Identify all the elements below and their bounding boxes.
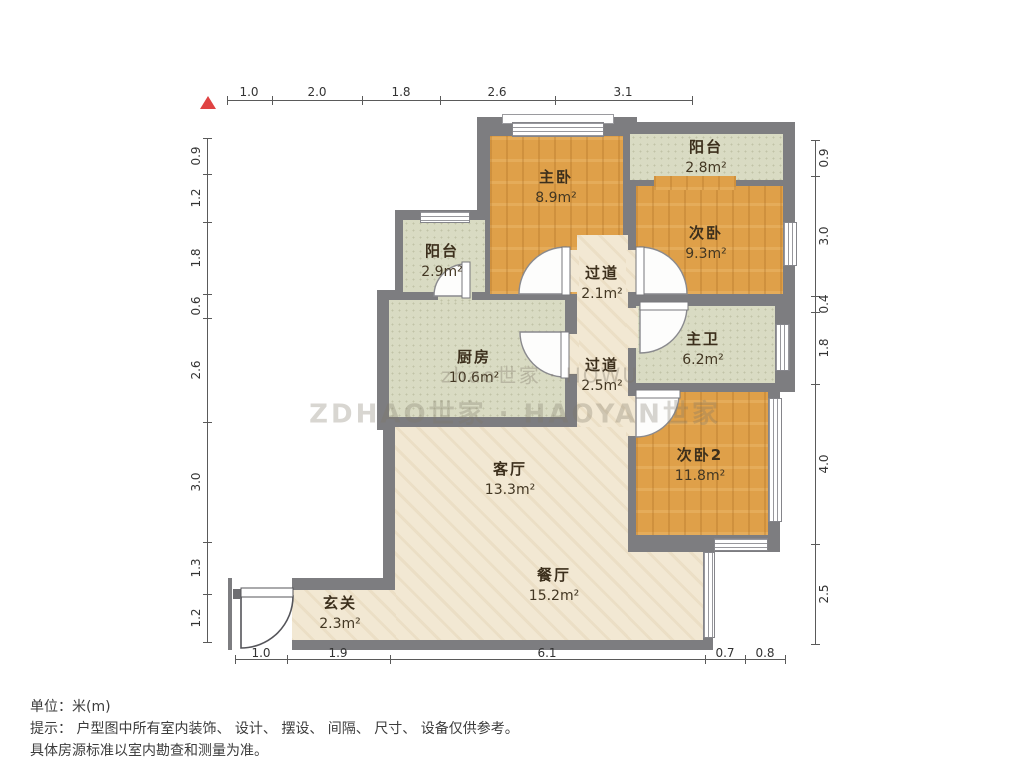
room-label-balcony-left: 阳台 2.9m² — [421, 244, 463, 279]
room-label-master-bath: 主卫 6.2m² — [682, 332, 724, 367]
room-area: 2.8m² — [685, 161, 727, 175]
tick — [745, 655, 746, 664]
room-name: 阳台 — [685, 140, 727, 155]
room-area: 13.3m² — [485, 483, 535, 497]
room-area: 10.6m² — [449, 371, 499, 385]
dim-label: 1.8 — [817, 338, 831, 357]
room-label-hallway1: 过道 2.1m² — [581, 266, 623, 301]
disclaimer-line1: 提示： 户型图中所有室内装饰、 设计、 摆设、 间隔、 尺寸、 设备仅供参考。 — [30, 718, 519, 740]
room-name: 主卫 — [682, 332, 724, 347]
dim-label: 2.0 — [307, 85, 326, 99]
dim-label: 0.9 — [817, 148, 831, 167]
door-arc-bedroom2 — [640, 247, 687, 294]
tick — [203, 318, 212, 319]
dim-label: 4.0 — [817, 454, 831, 473]
tick — [235, 655, 236, 664]
door-arc-bedroom3 — [636, 394, 679, 437]
dim-label: 1.0 — [239, 85, 258, 99]
dim-label: 0.9 — [189, 146, 203, 165]
room-area: 6.2m² — [682, 353, 724, 367]
room-label-dining-room: 餐厅 15.2m² — [529, 568, 579, 603]
dim-label: 1.3 — [189, 558, 203, 577]
room-name: 主卧 — [535, 170, 577, 185]
tick — [440, 96, 441, 105]
tick — [287, 655, 288, 664]
tick — [203, 294, 212, 295]
door-leaf-master-bedroom — [562, 247, 570, 295]
room-name: 过道 — [581, 266, 623, 281]
dim-label: 3.1 — [613, 85, 632, 99]
door-arc-master-bedroom — [519, 247, 566, 294]
dim-label: 0.4 — [817, 294, 831, 313]
dim-label: 0.6 — [189, 296, 203, 315]
room-name: 阳台 — [421, 244, 463, 259]
tick — [203, 138, 212, 139]
dim-label: 2.6 — [487, 85, 506, 99]
room-area: 2.3m² — [319, 617, 361, 631]
dim-line — [235, 659, 785, 660]
tick — [705, 655, 706, 664]
footer-notes: 单位：米(m) 提示： 户型图中所有室内装饰、 设计、 摆设、 间隔、 尺寸、 … — [30, 696, 519, 762]
tick — [811, 544, 820, 545]
door-leaf-kitchen — [561, 332, 569, 378]
dim-label: 0.7 — [715, 646, 734, 660]
unit-note: 单位：米(m) — [30, 696, 519, 718]
door-leaf-bedroom2 — [636, 247, 644, 295]
room-area: 2.1m² — [581, 287, 623, 301]
room-label-entry: 玄关 2.3m² — [319, 596, 361, 631]
tick — [692, 96, 693, 105]
room-label-hallway2: 过道 2.5m² — [581, 358, 623, 393]
room-label-master-bedroom: 主卧 8.9m² — [535, 170, 577, 205]
tick — [362, 96, 363, 105]
door-arc-entry — [241, 596, 293, 648]
tick — [811, 644, 820, 645]
dim-line — [815, 140, 816, 644]
door-leaf-bedroom3 — [636, 390, 680, 398]
room-label-living-room: 客厅 13.3m² — [485, 462, 535, 497]
tick — [203, 222, 212, 223]
room-label-balcony-top: 阳台 2.8m² — [685, 140, 727, 175]
dim-label: 1.8 — [391, 85, 410, 99]
room-area: 15.2m² — [529, 589, 579, 603]
room-name: 餐厅 — [529, 568, 579, 583]
room-area: 9.3m² — [685, 247, 727, 261]
dim-label: 1.2 — [189, 608, 203, 627]
door-arc-master-bath — [640, 306, 687, 353]
room-name: 客厅 — [485, 462, 535, 477]
dim-label: 3.0 — [817, 226, 831, 245]
room-label-bedroom3: 次卧2 11.8m² — [675, 448, 725, 483]
dim-label: 1.2 — [189, 188, 203, 207]
room-area: 2.9m² — [421, 265, 463, 279]
tick — [227, 96, 228, 105]
dim-label: 2.5 — [817, 584, 831, 603]
tick — [203, 642, 212, 643]
tick — [203, 542, 212, 543]
room-name: 次卧 — [685, 226, 727, 241]
dim-label: 1.0 — [251, 646, 270, 660]
dim-label: 6.1 — [537, 646, 556, 660]
dim-label: 3.0 — [189, 472, 203, 491]
room-label-bedroom2: 次卧 9.3m² — [685, 226, 727, 261]
tick — [203, 594, 212, 595]
tick — [785, 655, 786, 664]
door-arc-kitchen — [520, 332, 565, 377]
disclaimer-line2: 具体房源标准以室内勘查和测量为准。 — [30, 740, 519, 762]
room-label-kitchen: 厨房 10.6m² — [449, 350, 499, 385]
dim-line — [207, 138, 208, 642]
floorplan-canvas: 主卧 8.9m² 阳台 2.8m² 次卧 9.3m² 阳台 2.9m² 过道 2… — [0, 0, 1024, 768]
door-arcs-layer — [0, 0, 1024, 768]
room-name: 过道 — [581, 358, 623, 373]
tick — [811, 140, 820, 141]
tick — [811, 176, 820, 177]
room-area: 8.9m² — [535, 191, 577, 205]
door-leaf-balcony-left — [462, 262, 470, 298]
dim-line — [227, 100, 692, 101]
tick — [203, 422, 212, 423]
dim-label: 1.9 — [328, 646, 347, 660]
tick — [203, 174, 212, 175]
room-name: 次卧2 — [675, 448, 725, 463]
tick — [555, 96, 556, 105]
door-leaf-entry — [241, 588, 293, 597]
room-name: 玄关 — [319, 596, 361, 611]
door-leaf-master-bath — [640, 302, 688, 310]
room-area: 11.8m² — [675, 469, 725, 483]
room-name: 厨房 — [449, 350, 499, 365]
dim-label: 1.8 — [189, 248, 203, 267]
tick — [811, 384, 820, 385]
dim-label: 0.8 — [755, 646, 774, 660]
dim-label: 2.6 — [189, 360, 203, 379]
room-area: 2.5m² — [581, 379, 623, 393]
tick — [272, 96, 273, 105]
tick — [390, 655, 391, 664]
